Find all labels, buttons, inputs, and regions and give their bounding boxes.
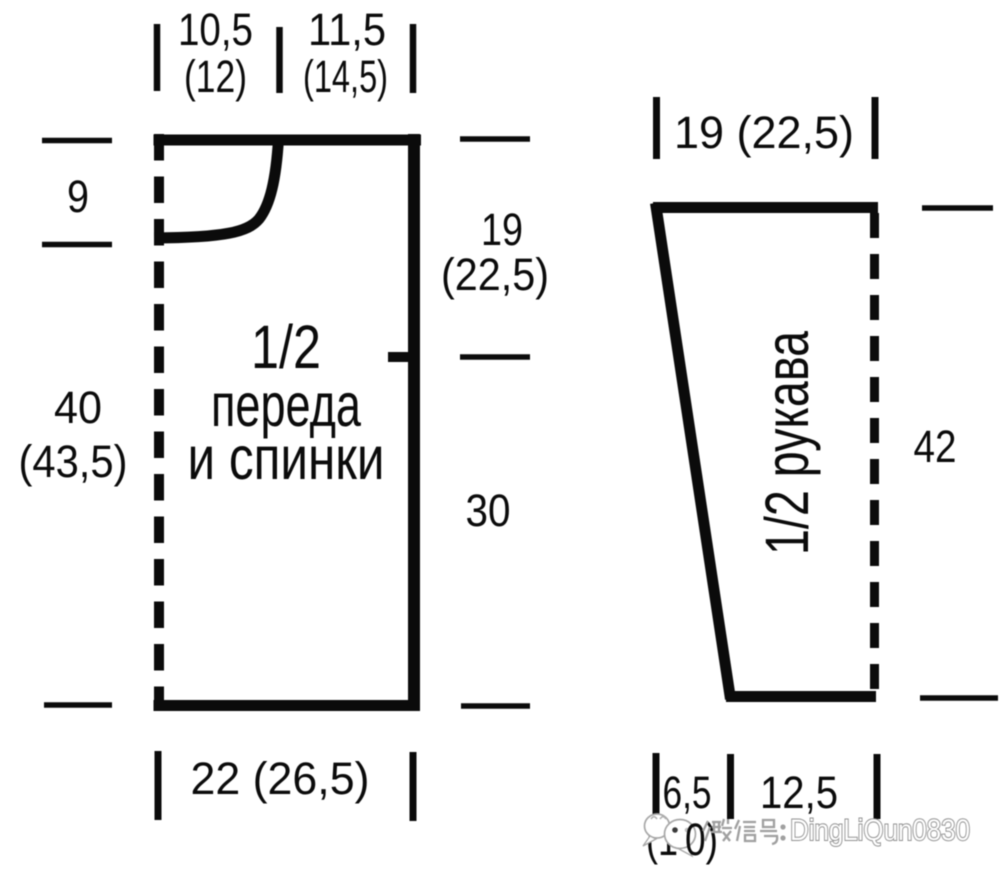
svg-text:19: 19: [481, 204, 523, 255]
svg-text:и спинки: и спинки: [188, 424, 385, 492]
svg-text:(14,5): (14,5): [303, 51, 388, 102]
svg-text:9: 9: [67, 171, 89, 222]
svg-text:40: 40: [54, 382, 102, 433]
svg-text:(43,5): (43,5): [19, 436, 128, 487]
svg-text:30: 30: [466, 485, 511, 536]
svg-text:1/2 рукава: 1/2 рукава: [753, 331, 821, 555]
svg-text:19 (22,5): 19 (22,5): [674, 107, 854, 158]
svg-text:10,5: 10,5: [178, 4, 253, 55]
svg-text:DingLiQun0830: DingLiQun0830: [790, 814, 970, 847]
svg-text:(22,5): (22,5): [441, 249, 549, 300]
svg-text:6,5: 6,5: [663, 767, 712, 818]
svg-text:11,5: 11,5: [308, 4, 386, 55]
svg-text:12,5: 12,5: [760, 767, 838, 818]
svg-text:22 (26,5): 22 (26,5): [191, 753, 370, 804]
svg-text:42: 42: [914, 421, 957, 472]
svg-text:(12): (12): [184, 51, 247, 102]
